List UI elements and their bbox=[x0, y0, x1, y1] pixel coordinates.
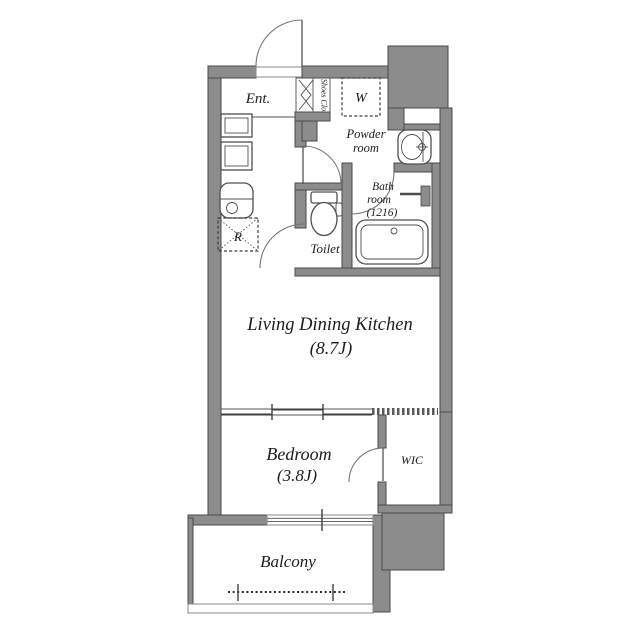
bedroom-area-label: (3.8J) bbox=[277, 466, 317, 485]
entrance-door-sill bbox=[256, 67, 302, 77]
ldk-label: Living Dining Kitchen bbox=[246, 315, 412, 335]
shaft-ledge bbox=[404, 124, 440, 130]
pipe-shaft-block-top-right bbox=[388, 46, 448, 108]
bedroom-window bbox=[267, 515, 373, 525]
kitchen-sink bbox=[220, 183, 253, 218]
floor-plan-drawing: Ent. Shoes Clo W Powder room Bath room (… bbox=[0, 0, 640, 640]
bath-faucet-block bbox=[421, 186, 430, 206]
toilet-label: Toilet bbox=[310, 241, 340, 256]
shoes-closet-folding-door-icon bbox=[299, 80, 313, 110]
balcony-parapet-bottom bbox=[188, 604, 373, 613]
bedroom-label: Bedroom bbox=[266, 444, 331, 464]
structure-block-bottom-right bbox=[382, 513, 444, 570]
bathroom-label-line3: (1216) bbox=[367, 207, 398, 219]
floor-plan-page: Ent. Shoes Clo W Powder room Bath room (… bbox=[0, 0, 640, 640]
top-wall-left bbox=[208, 66, 256, 78]
shoes-closet-bottom-wall bbox=[295, 112, 330, 121]
toilet-bath-wall bbox=[342, 163, 352, 276]
ldk-top-wall bbox=[295, 268, 440, 276]
hall-post bbox=[302, 121, 317, 141]
wic-label: WIC bbox=[401, 453, 424, 467]
left-outer-wall bbox=[208, 66, 221, 518]
powder-room-label-line2: room bbox=[353, 141, 379, 155]
toilet-door-swing-arc bbox=[260, 224, 304, 268]
refrigerator-label: R bbox=[233, 229, 242, 244]
entrance-door-swing-arc bbox=[256, 20, 302, 66]
entrance-label: Ent. bbox=[245, 91, 271, 107]
toilet-tank bbox=[311, 192, 337, 203]
balcony-label: Balcony bbox=[260, 552, 316, 571]
right-outer-wall-lower bbox=[440, 412, 452, 505]
washing-machine-label: W bbox=[355, 91, 368, 106]
top-wall-right bbox=[302, 66, 390, 78]
shaft-stub bbox=[388, 108, 404, 130]
bedroom-bottom-wall bbox=[188, 515, 267, 525]
wic-bottom-wall bbox=[378, 505, 452, 513]
shoes-closet-label: Shoes Clo bbox=[320, 79, 329, 111]
bathroom-label-line2: room bbox=[367, 194, 391, 206]
wic-left-wall-top bbox=[378, 415, 386, 448]
balcony-left-wall bbox=[188, 518, 193, 606]
right-outer-wall-upper bbox=[440, 108, 452, 412]
toilet-bowl bbox=[311, 203, 337, 236]
ldk-area-label: (8.7J) bbox=[310, 338, 352, 359]
powder-room-door-swing-arc bbox=[303, 146, 341, 184]
bath-right-wall bbox=[432, 163, 440, 276]
wic-left-wall-bottom bbox=[378, 482, 386, 505]
bathroom-label-line1: Bath bbox=[372, 181, 394, 193]
kitchen-counter-top-unit bbox=[221, 114, 252, 137]
powder-room-label-line1: Powder bbox=[346, 127, 386, 141]
wic-door-swing-arc bbox=[349, 448, 383, 482]
bathtub-outer bbox=[356, 220, 428, 264]
